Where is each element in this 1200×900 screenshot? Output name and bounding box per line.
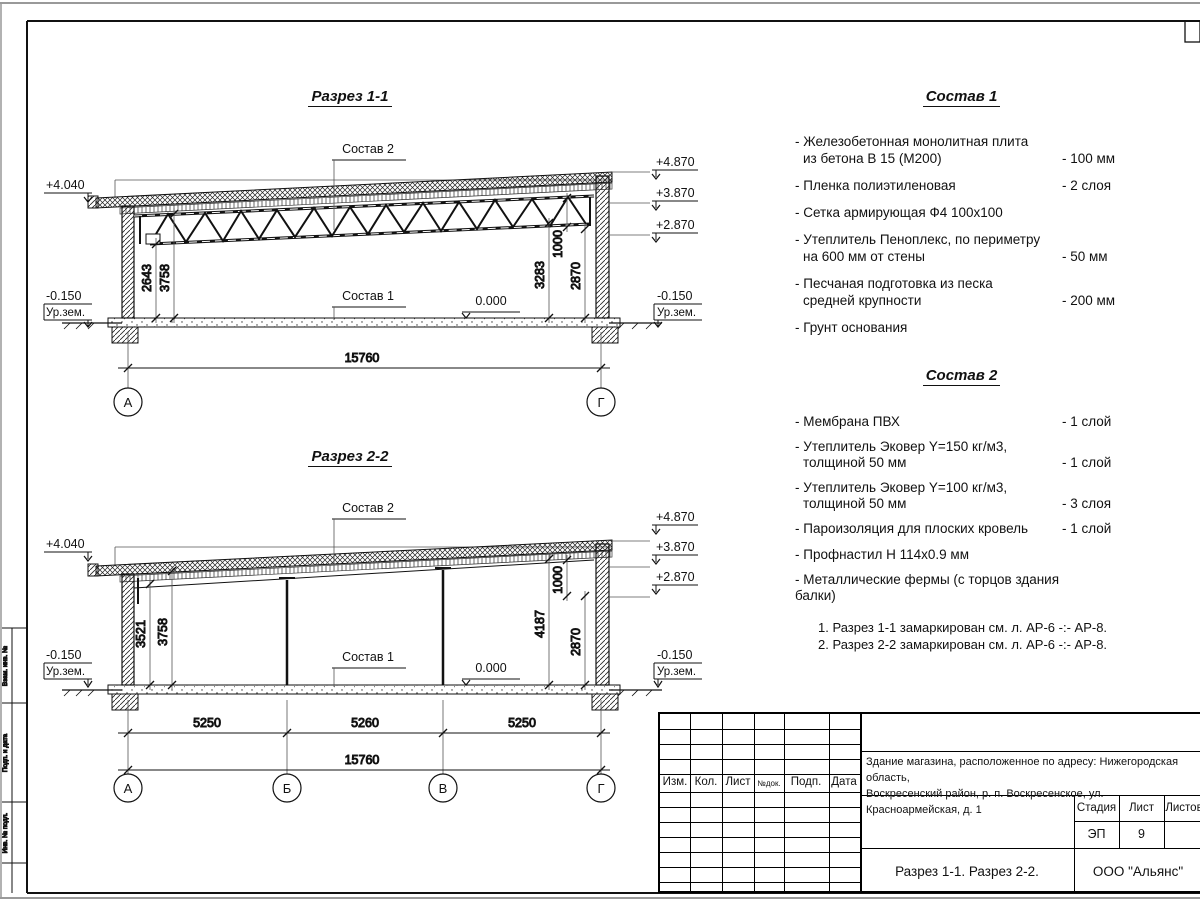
- section-2-title: Разрез 2-2: [270, 448, 430, 467]
- material-value: - 200 мм: [1062, 292, 1128, 309]
- column-b: [279, 578, 295, 685]
- material-row: - Утеплитель Пеноплекс, по периметру на …: [795, 231, 1128, 265]
- roof-edge-block: [88, 196, 98, 208]
- material-line2: из бетона В 15 (М200): [795, 150, 1062, 167]
- elev-left-minus0150: -0.150 Ур.зем.: [44, 648, 92, 687]
- svg-text:+3.870: +3.870: [656, 186, 695, 200]
- drawing-name: Разрез 1-1. Разрез 2-2.: [860, 848, 1074, 895]
- project-line1: Здание магазина, расположенное по адресу…: [866, 754, 1200, 786]
- section-2-2-drawing: Состав 2 Состав 1 0.000 +4.040 -0.150 Ур…: [44, 501, 702, 802]
- sheet-label: Лист: [1119, 798, 1164, 818]
- elev-right-4870: +4.870: [612, 155, 698, 179]
- material-row: - Металлические фермы (с торцов здания б…: [795, 572, 1128, 603]
- svg-text:15760: 15760: [345, 351, 380, 365]
- roof-edge-block: [88, 564, 98, 576]
- svg-text:А: А: [124, 395, 133, 410]
- svg-text:+4.040: +4.040: [46, 537, 85, 551]
- material-row: - Песчаная подготовка из песка средней к…: [795, 275, 1128, 309]
- material-row: - Мембрана ПВХ - 1 слой: [795, 414, 1128, 430]
- svg-text:+2.870: +2.870: [656, 218, 695, 232]
- axis-bubble-b2: Б: [273, 774, 301, 802]
- company-name: ООО "Альянс": [1074, 848, 1200, 895]
- material-value: - 1 слой: [1062, 414, 1128, 430]
- material-row: - Пароизоляция для плоских кровель - 1 с…: [795, 521, 1128, 537]
- svg-text:-0.150: -0.150: [657, 289, 692, 303]
- dims-bottom: 5250 5260 5250 15760: [118, 700, 610, 774]
- elev-right-2870: +2.870: [609, 570, 698, 597]
- material-value: - 100 мм: [1062, 150, 1128, 167]
- section-1-1-drawing: Состав 2 Состав 1 0.000 +4.040 -0.150 Ур: [44, 142, 702, 416]
- material-line1: - Утеплитель Эковер Y=150 кг/м3,: [795, 439, 1062, 455]
- material-row: - Железобетонная монолитная плита из бет…: [795, 133, 1128, 167]
- elev-left-4040: +4.040: [44, 178, 92, 202]
- tb-col-kol: Кол.: [695, 776, 718, 788]
- notes: 1. Разрез 1-1 замаркирован см. л. АР-6 -…: [818, 620, 1107, 653]
- svg-text:3758: 3758: [156, 618, 170, 646]
- material-line1: - Сетка армирующая Ф4 100х100: [795, 204, 1062, 221]
- elev-right-2870: +2.870: [609, 218, 698, 242]
- tb-col-podp: Подп.: [791, 776, 822, 788]
- foundation-right: [592, 327, 618, 343]
- svg-text:А: А: [124, 781, 133, 796]
- material-line1: - Утеплитель Эковер Y=100 кг/м3,: [795, 480, 1062, 496]
- material-row: - Утеплитель Эковер Y=100 кг/м3, толщино…: [795, 480, 1128, 511]
- svg-text:1000: 1000: [551, 230, 565, 258]
- svg-text:3521: 3521: [134, 620, 148, 648]
- elev-left-minus0150: -0.150 Ур.зем.: [44, 289, 92, 327]
- axis-bubble-v2: В: [429, 774, 457, 802]
- material-row: - Профнастил Н 114х0.9 мм: [795, 547, 1128, 563]
- sostav1-list: Состав 1 - Железобетонная монолитная пли…: [795, 88, 1128, 346]
- wall-left: [122, 574, 134, 685]
- note-2: 2. Разрез 2-2 замаркирован см. л. АР-6 -…: [818, 637, 1107, 654]
- svg-text:2870: 2870: [569, 628, 583, 656]
- svg-text:2643: 2643: [140, 264, 154, 292]
- svg-text:+4.040: +4.040: [46, 178, 85, 192]
- material-row: - Пленка полиэтиленовая - 2 слоя: [795, 177, 1128, 194]
- elev-right-4870: +4.870: [612, 510, 698, 541]
- material-line1: - Грунт основания: [795, 319, 1062, 336]
- svg-text:Ур.зем.: Ур.зем.: [46, 307, 85, 319]
- svg-text:5260: 5260: [351, 716, 379, 730]
- sheets-label: Листов: [1164, 798, 1200, 818]
- wall-left: [122, 206, 134, 318]
- elev-right-3870: +3.870: [609, 186, 698, 210]
- stage-label: Стадия: [1074, 798, 1119, 818]
- svg-text:Состав 2: Состав 2: [342, 501, 394, 515]
- material-value: - 1 слой: [1062, 455, 1128, 471]
- svg-text:Г: Г: [597, 781, 604, 796]
- stage-value: ЭП: [1074, 824, 1119, 844]
- material-line1: - Утеплитель Пеноплекс, по периметру: [795, 231, 1062, 248]
- svg-text:2870: 2870: [569, 262, 583, 290]
- svg-text:Состав 1: Состав 1: [342, 650, 394, 664]
- svg-text:Б: Б: [283, 781, 292, 796]
- material-line1: - Песчаная подготовка из песка: [795, 275, 1062, 292]
- floor-slab: [108, 318, 620, 327]
- side-label-podp: Подп. и дата: [2, 733, 9, 772]
- level-zero-mark: 0.000: [462, 294, 520, 318]
- material-line1: - Пароизоляция для плоских кровель: [795, 521, 1062, 537]
- svg-text:-0.150: -0.150: [657, 648, 692, 662]
- svg-text:-0.150: -0.150: [46, 648, 81, 662]
- material-line2: средней крупности: [795, 292, 1062, 309]
- material-line2: толщиной 50 мм: [795, 496, 1062, 512]
- dims-bottom: 15760: [118, 332, 610, 388]
- axis-bubble-g2: Г: [587, 774, 615, 802]
- material-value: - 50 мм: [1062, 248, 1128, 265]
- material-line1: - Профнастил Н 114х0.9 мм: [795, 547, 1062, 563]
- elev-right-minus0150: -0.150 Ур.зем.: [654, 289, 702, 327]
- elev-right-3870: +3.870: [609, 540, 698, 567]
- tb-col-izm: Изм.: [663, 776, 688, 788]
- sheets-count: [1164, 824, 1200, 844]
- wall-right: [596, 176, 609, 318]
- level-zero-mark: 0.000: [462, 661, 520, 685]
- svg-text:3758: 3758: [158, 264, 172, 292]
- foundation-left: [112, 327, 138, 343]
- svg-text:5250: 5250: [193, 716, 221, 730]
- corner-stamp-box: [1185, 21, 1200, 42]
- svg-text:+2.870: +2.870: [656, 570, 695, 584]
- column-v: [435, 568, 451, 685]
- svg-text:+3.870: +3.870: [656, 540, 695, 554]
- svg-text:1000: 1000: [551, 566, 565, 594]
- material-value: - 3 слоя: [1062, 496, 1128, 512]
- svg-text:+4.870: +4.870: [656, 155, 695, 169]
- svg-text:Ур.зем.: Ур.зем.: [46, 666, 85, 678]
- side-label-inv: Инв. № подл.: [2, 813, 9, 854]
- side-label-vzam: Взам. инв. №: [2, 646, 9, 686]
- roof-truss: [134, 196, 594, 244]
- tb-col-ndok: №док.: [757, 779, 780, 788]
- svg-text:В: В: [439, 781, 448, 796]
- sostav2-heading: Состав 2: [795, 368, 1128, 386]
- svg-text:3283: 3283: [533, 261, 547, 289]
- sostav1-leader: Состав 1: [332, 650, 406, 687]
- svg-text:+4.870: +4.870: [656, 510, 695, 524]
- tb-col-list: Лист: [726, 776, 751, 788]
- material-value: - 1 слой: [1062, 521, 1128, 537]
- material-row: - Утеплитель Эковер Y=150 кг/м3, толщино…: [795, 439, 1128, 470]
- svg-text:Ур.зем.: Ур.зем.: [657, 307, 696, 319]
- axis-bubble-g1: Г: [587, 388, 615, 416]
- elev-right-minus0150: -0.150 Ур.зем.: [654, 648, 702, 687]
- svg-text:4187: 4187: [533, 610, 547, 638]
- axis-bubble-a1: А: [114, 388, 142, 416]
- sostav1-heading: Состав 1: [795, 88, 1128, 107]
- sostav2-list: Состав 2 - Мембрана ПВХ - 1 слой - Утепл…: [795, 368, 1128, 613]
- material-line2: на 600 мм от стены: [795, 248, 1062, 265]
- floor-slab: [108, 685, 620, 694]
- material-line1: - Мембрана ПВХ: [795, 414, 1062, 430]
- tb-col-data: Дата: [831, 776, 856, 788]
- note-1: 1. Разрез 1-1 замаркирован см. л. АР-6 -…: [818, 620, 1107, 637]
- svg-text:Состав 2: Состав 2: [342, 142, 394, 156]
- svg-text:-0.150: -0.150: [46, 289, 81, 303]
- material-line1: - Пленка полиэтиленовая: [795, 177, 1062, 194]
- drawing-sheet: Взам. инв. № Подп. и дата Инв. № подл.: [0, 0, 1200, 900]
- title-block: Изм. Кол. Лист №док. Подп. Дата Здание м…: [658, 712, 1200, 893]
- svg-text:Ур.зем.: Ур.зем.: [657, 666, 696, 678]
- material-value: - 2 слоя: [1062, 177, 1128, 194]
- material-row: - Грунт основания: [795, 319, 1128, 336]
- sheet-number: 9: [1119, 824, 1164, 844]
- material-line2: толщиной 50 мм: [795, 455, 1062, 471]
- frame-side-column: Взам. инв. № Подп. и дата Инв. № подл.: [2, 628, 27, 893]
- material-line1: - Железобетонная монолитная плита: [795, 133, 1062, 150]
- svg-text:5250: 5250: [508, 716, 536, 730]
- svg-text:15760: 15760: [345, 753, 380, 767]
- svg-text:Г: Г: [597, 395, 604, 410]
- elev-left-4040: +4.040: [44, 537, 92, 561]
- svg-text:0.000: 0.000: [475, 661, 506, 675]
- svg-text:Состав 1: Состав 1: [342, 289, 394, 303]
- wall-right: [596, 544, 609, 685]
- foundation-right: [592, 694, 618, 710]
- material-line1: - Металлические фермы (с торцов здания б…: [795, 572, 1062, 603]
- axis-bubble-a2: А: [114, 774, 142, 802]
- foundation-left: [112, 694, 138, 710]
- svg-text:0.000: 0.000: [475, 294, 506, 308]
- section-1-title: Разрез 1-1: [270, 88, 430, 107]
- sostav1-leader: Состав 1: [332, 289, 406, 320]
- material-row: - Сетка армирующая Ф4 100х100: [795, 204, 1128, 221]
